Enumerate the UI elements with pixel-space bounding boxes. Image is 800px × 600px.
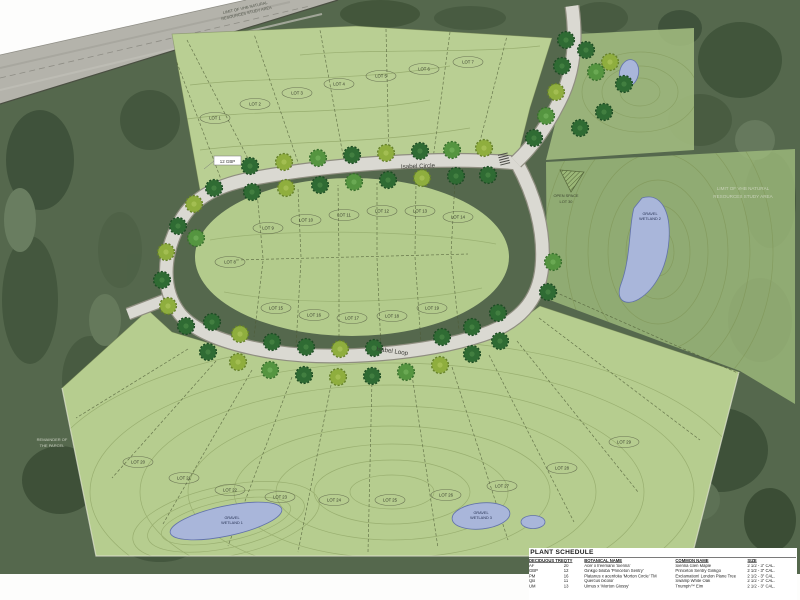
cell-code: UM <box>529 585 564 590</box>
svg-text:LOT 11: LOT 11 <box>337 213 351 218</box>
svg-text:LOT 19: LOT 19 <box>425 306 440 311</box>
svg-text:LOT 13: LOT 13 <box>413 209 428 214</box>
site-plan-page: Isabel Circle Isabel Loop 12 GBP LIMIT O… <box>0 0 800 600</box>
svg-text:LOT 26: LOT 26 <box>439 493 454 498</box>
svg-text:REMAINDER OF: REMAINDER OF <box>37 437 68 442</box>
svg-text:LOT 9: LOT 9 <box>262 226 274 231</box>
svg-text:LOT 24: LOT 24 <box>327 498 342 503</box>
svg-text:LOT 29: LOT 29 <box>617 440 632 445</box>
svg-text:LOT 5: LOT 5 <box>375 74 387 79</box>
svg-text:GRAVEL: GRAVEL <box>473 511 488 515</box>
svg-text:RESOURCES STUDY AREA: RESOURCES STUDY AREA <box>713 194 773 199</box>
street-label-isabel-circle: Isabel Circle <box>401 162 436 170</box>
svg-text:LOT 6: LOT 6 <box>418 67 430 72</box>
site-plan-map: Isabel Circle Isabel Loop 12 GBP LIMIT O… <box>0 0 800 600</box>
remainder-note: REMAINDER OF THE PARCEL <box>37 437 68 448</box>
svg-text:LOT 21: LOT 21 <box>177 476 192 481</box>
svg-text:LOT 28: LOT 28 <box>555 466 570 471</box>
svg-text:LOT 20: LOT 20 <box>131 460 146 465</box>
cell-botanical: Ulmus x 'Morton Glossy' <box>584 585 675 590</box>
svg-text:OPEN SPACE: OPEN SPACE <box>553 193 578 198</box>
svg-text:LOT 17: LOT 17 <box>345 316 360 321</box>
svg-text:LOT 23: LOT 23 <box>273 495 288 500</box>
svg-text:WETLAND 3: WETLAND 3 <box>470 516 492 520</box>
plant-schedule-table: DECIDUOUS TREES QTY BOTANICAL NAME COMMO… <box>529 559 796 590</box>
svg-text:LOT 14: LOT 14 <box>451 215 466 220</box>
svg-text:LOT 1: LOT 1 <box>209 116 221 121</box>
svg-text:LIMIT OF VHB NATURAL: LIMIT OF VHB NATURAL <box>717 186 770 191</box>
svg-text:LOT 3: LOT 3 <box>291 91 303 96</box>
svg-text:LOT 12: LOT 12 <box>375 209 390 214</box>
svg-text:LOT 10: LOT 10 <box>299 218 314 223</box>
svg-text:12 GBP: 12 GBP <box>220 159 235 164</box>
cell-size: 2 1/2 - 3" CAL. <box>747 585 796 590</box>
cell-common: Triumph™ Elm <box>675 585 747 590</box>
plant-schedule-title: PLANT SCHEDULE <box>529 548 796 558</box>
svg-text:WETLAND 2: WETLAND 2 <box>639 217 661 221</box>
cell-qty: 13 <box>564 585 584 590</box>
svg-text:GRAVEL: GRAVEL <box>642 212 657 216</box>
svg-text:LOT 8: LOT 8 <box>224 260 236 265</box>
svg-text:LOT 7: LOT 7 <box>462 60 474 65</box>
svg-text:LOT 15: LOT 15 <box>269 306 284 311</box>
svg-text:LOT 2: LOT 2 <box>249 102 261 107</box>
svg-text:LOT 16: LOT 16 <box>307 313 322 318</box>
svg-text:THE PARCEL: THE PARCEL <box>40 443 66 448</box>
svg-text:GRAVEL: GRAVEL <box>224 516 239 520</box>
svg-text:LOT 22: LOT 22 <box>223 488 238 493</box>
pond-small <box>521 516 545 529</box>
svg-text:WETLAND 1: WETLAND 1 <box>221 521 243 525</box>
svg-text:LOT 18: LOT 18 <box>385 314 400 319</box>
plant-schedule-panel: PLANT SCHEDULE DECIDUOUS TREES QTY BOTAN… <box>529 548 797 600</box>
svg-text:LOT 27: LOT 27 <box>495 484 510 489</box>
svg-text:LOT 4: LOT 4 <box>333 82 345 87</box>
svg-text:LOT 25: LOT 25 <box>383 498 398 503</box>
svg-text:LOT 30: LOT 30 <box>560 199 574 204</box>
